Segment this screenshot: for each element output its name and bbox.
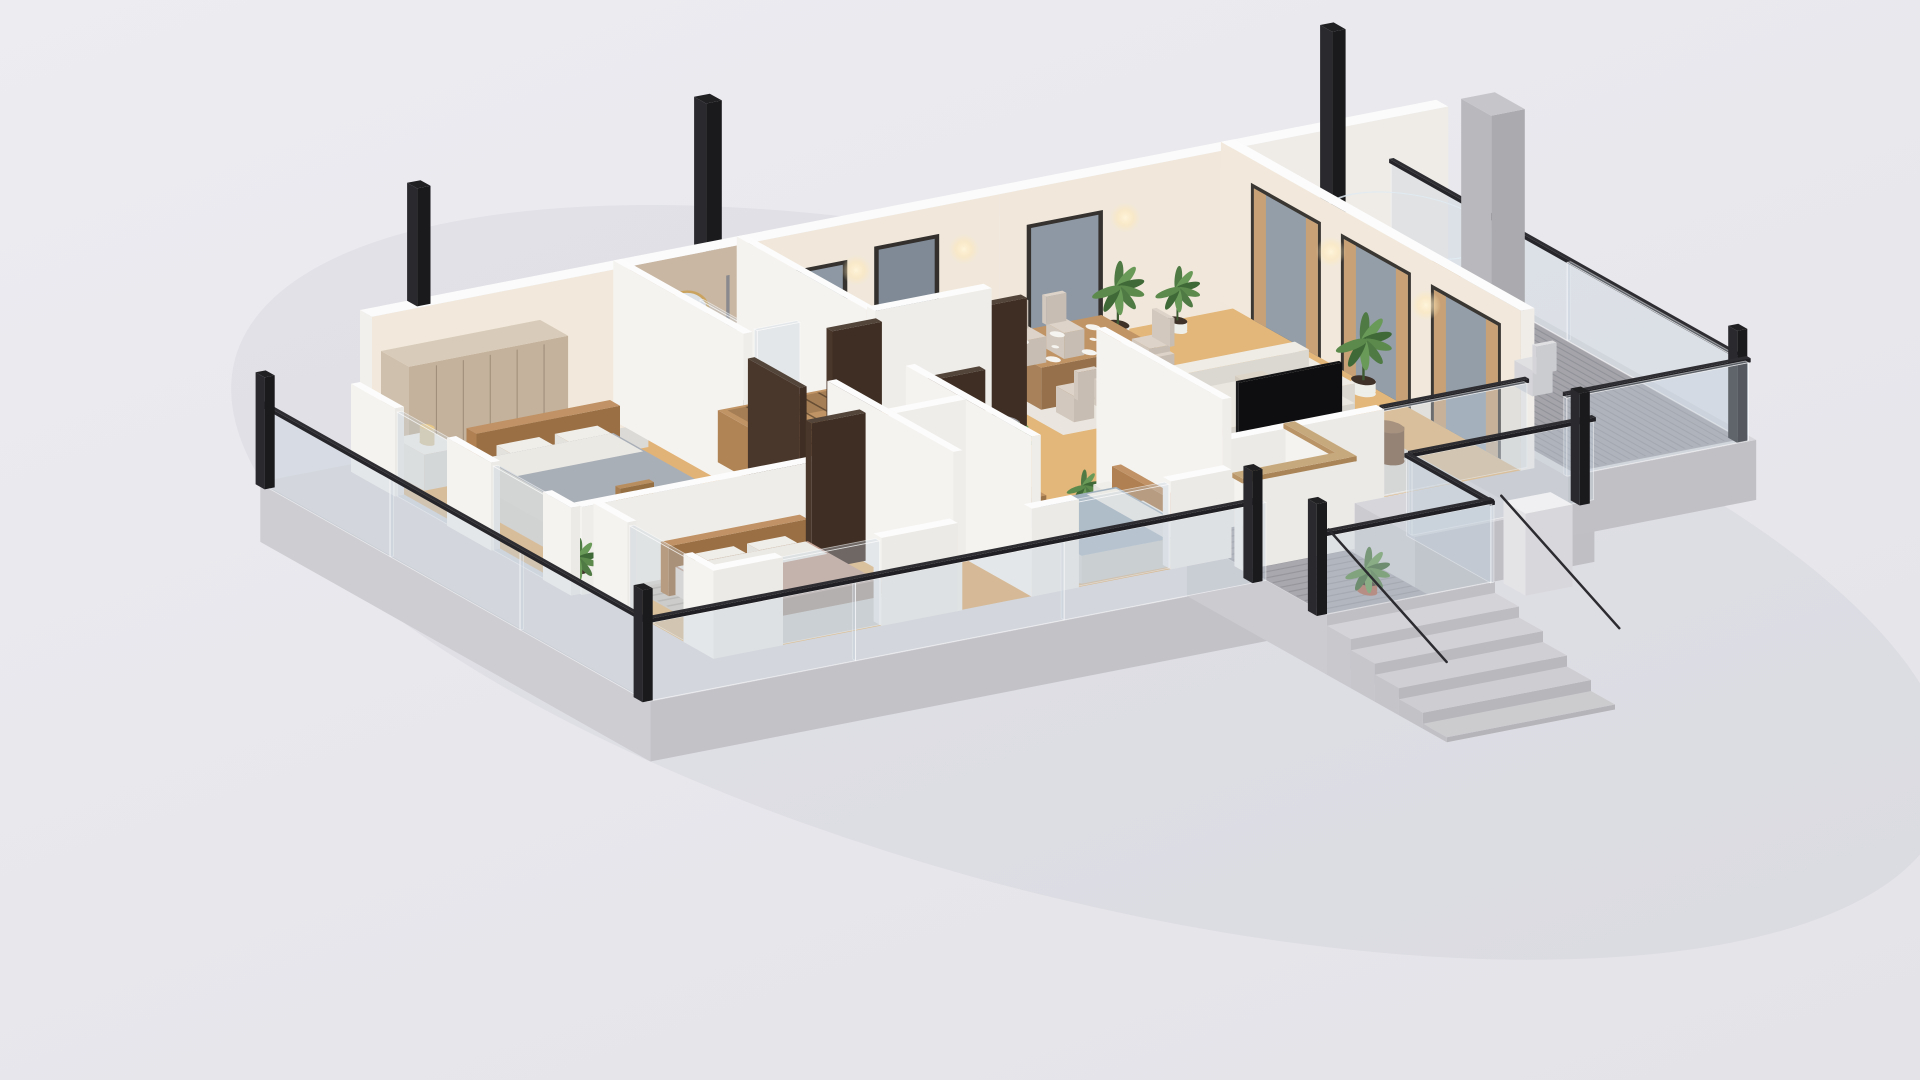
chimney [694,94,722,252]
railing-post [256,370,275,489]
railing-post [1571,387,1590,506]
railing-post [1243,464,1262,583]
floorplan-render [0,0,1920,1080]
chimney [407,180,430,306]
floor-plan-3d [0,0,1920,1080]
railing-post [1308,497,1327,616]
pillar-block [1504,492,1573,596]
railing-post [634,583,653,702]
